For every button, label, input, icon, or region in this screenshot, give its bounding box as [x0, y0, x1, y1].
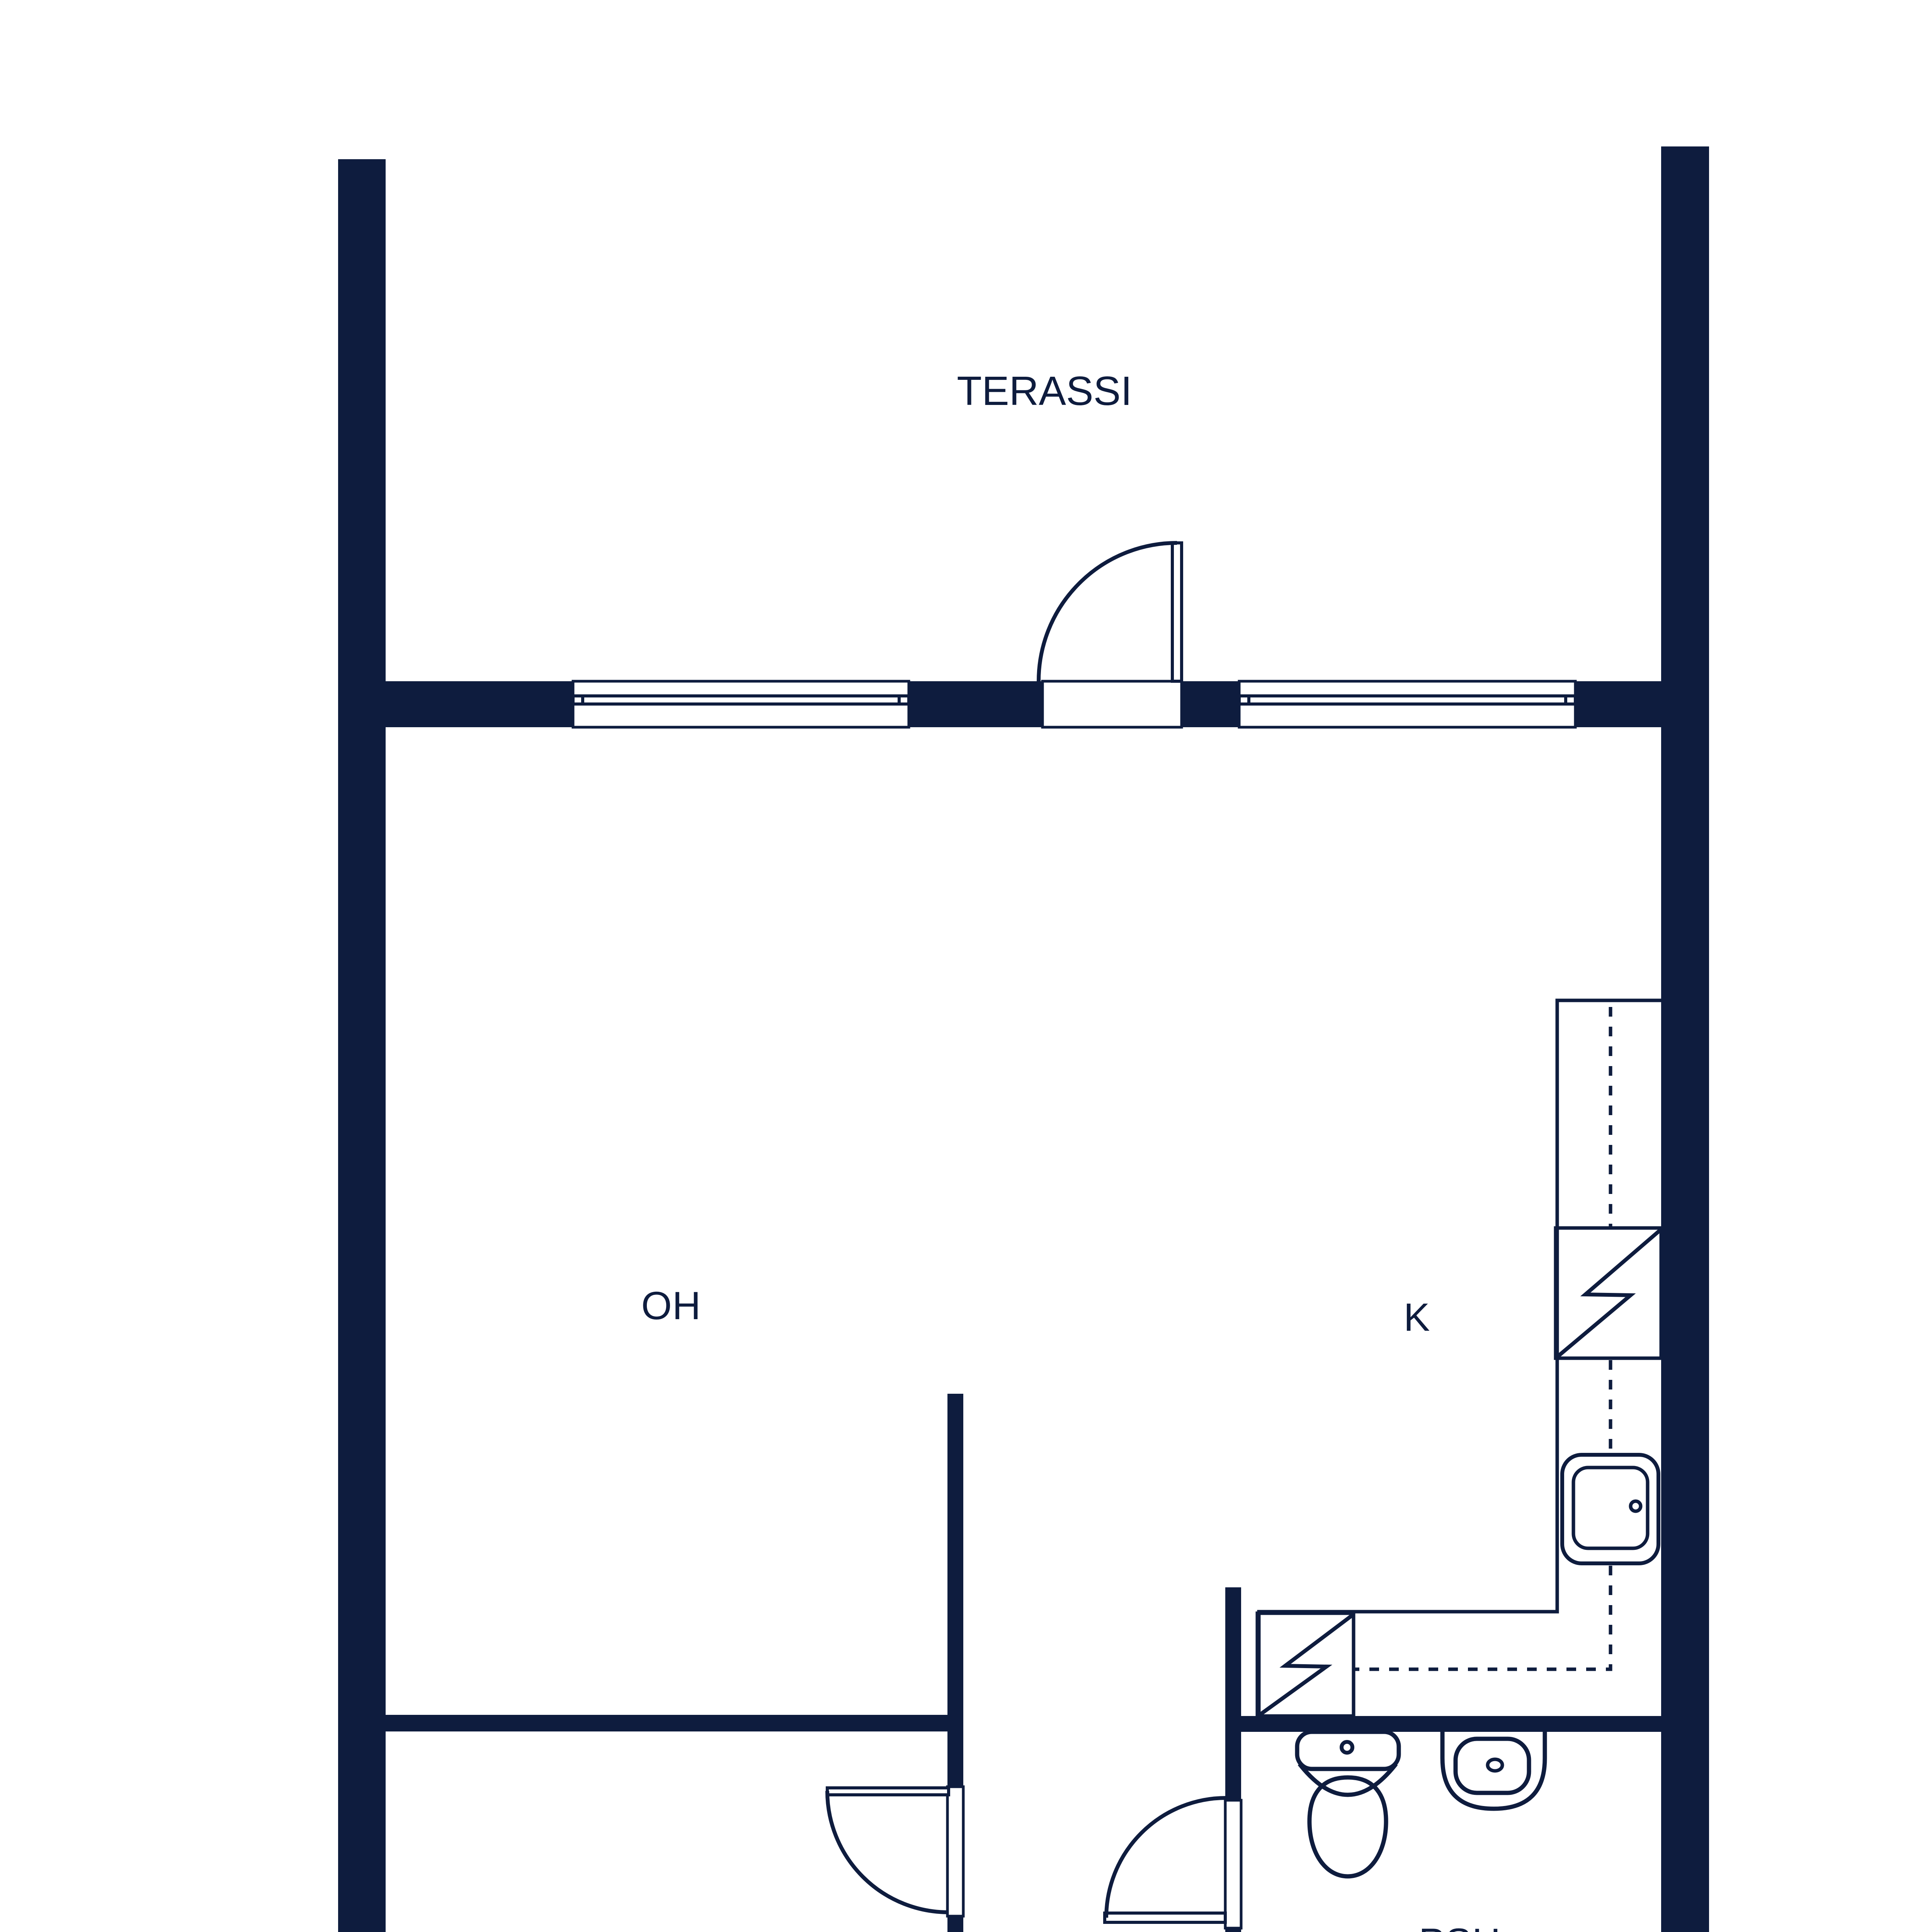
svg-text:K: K: [1403, 1295, 1430, 1339]
svg-text:OH: OH: [641, 1284, 701, 1328]
svg-text:TERASSI: TERASSI: [957, 368, 1132, 414]
svg-text:PSH: PSH: [1419, 1920, 1501, 1932]
